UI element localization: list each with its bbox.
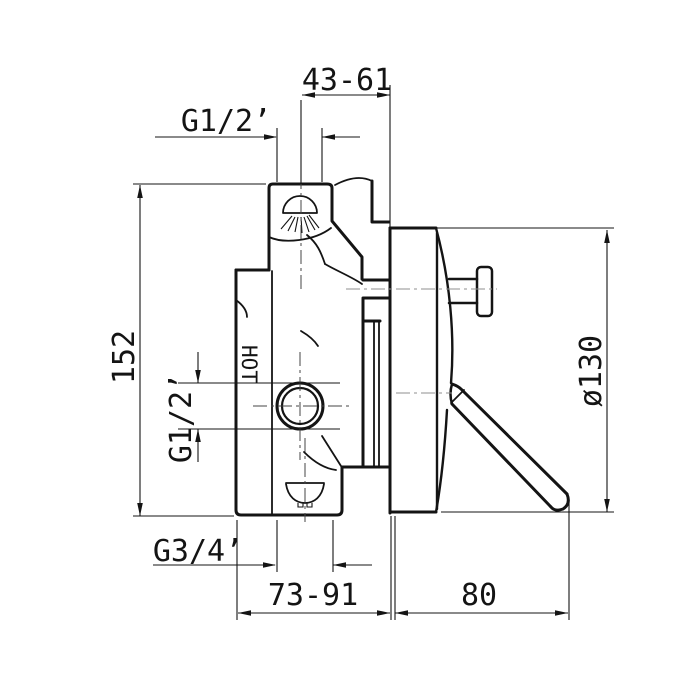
drawing-canvas: 43-61 G1/2’ 152 G1/2’ HOT ø130 G3/4’	[0, 0, 700, 700]
dimension-depth-range: 73-91	[237, 516, 391, 620]
escutcheon-plate	[390, 228, 452, 513]
centerlines	[253, 100, 497, 522]
dimension-plate-diameter: ø130	[392, 228, 614, 512]
hot-marking-label: HOT	[237, 345, 261, 383]
dim-projection-label: 80	[461, 578, 497, 613]
dimension-top-thread: G1/2’	[155, 104, 360, 182]
dim-top-thread-label: G1/2’	[181, 104, 271, 139]
dimension-top-offset: 43-61	[301, 63, 392, 227]
shower-head-icon	[281, 196, 319, 233]
dim-height-label: 152	[107, 330, 142, 384]
lever-handle	[451, 384, 569, 510]
dim-bottom-thread-label: G3/4’	[153, 534, 243, 569]
dim-depth-range-label: 73-91	[268, 578, 358, 613]
dimension-projection: 80	[395, 500, 569, 620]
diverter-knob	[449, 267, 492, 316]
dim-plate-diameter-label: ø130	[574, 335, 609, 407]
dim-inlet-thread-label: G1/2’	[164, 373, 199, 463]
dimension-bottom-thread: G3/4’	[153, 520, 372, 572]
dim-top-offset-label: 43-61	[302, 63, 392, 98]
technical-drawing: 43-61 G1/2’ 152 G1/2’ HOT ø130 G3/4’	[0, 0, 700, 700]
